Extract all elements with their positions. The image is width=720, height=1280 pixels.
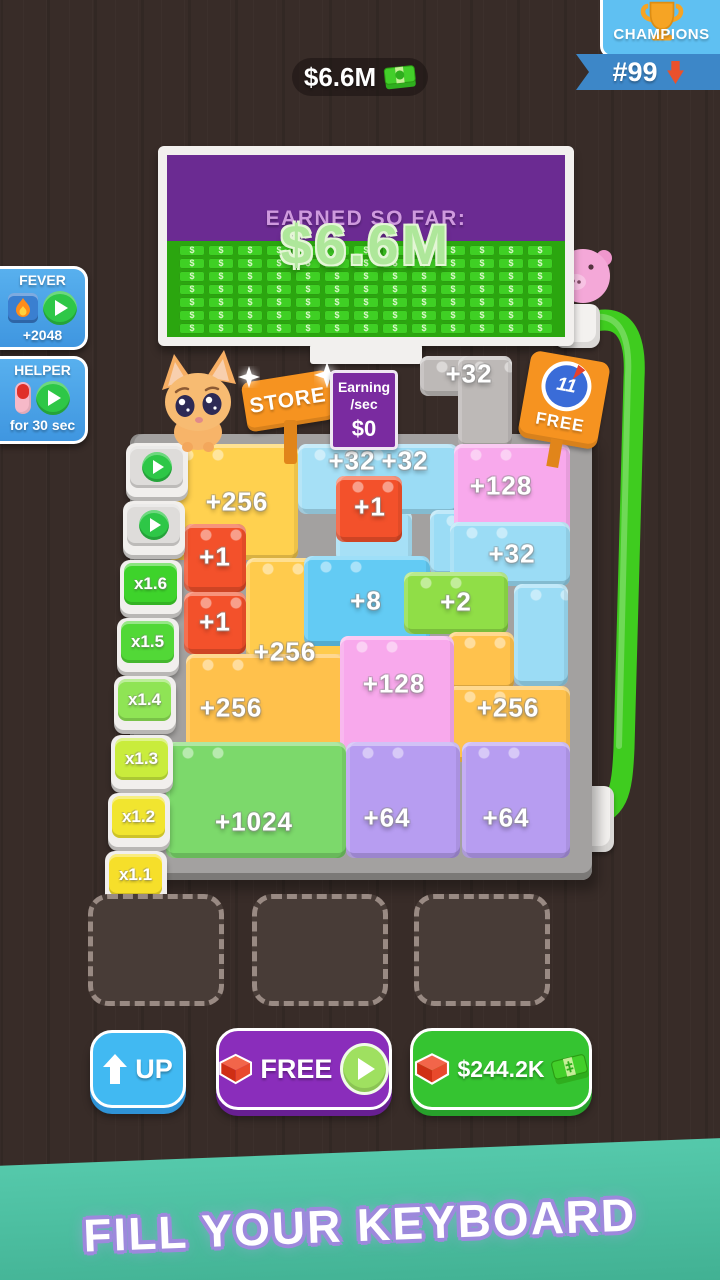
empty-slot[interactable] — [414, 894, 550, 1006]
free-button-label: FREE — [260, 1054, 332, 1085]
dollar-bill-icon: $ — [295, 284, 321, 295]
dollar-bill-icon: $ — [527, 323, 553, 334]
helper-duration: for 30 sec — [10, 417, 75, 433]
flame-icon — [14, 298, 32, 318]
dollar-bill-icon: $ — [266, 284, 292, 295]
dollar-bill-icon: $ — [266, 323, 292, 334]
helper-title: HELPER — [14, 362, 71, 378]
billboard-stand — [310, 344, 422, 364]
dollar-bill-icon: $ — [527, 297, 553, 308]
play-icon — [139, 510, 169, 540]
dollar-bill-icon: $ — [411, 310, 437, 321]
dollar-bill-icon: $ — [382, 284, 408, 295]
dollar-bill-icon: $ — [324, 310, 350, 321]
up-button-label: UP — [135, 1054, 173, 1085]
board-piece[interactable] — [184, 524, 246, 592]
helper-play-button[interactable] — [36, 381, 70, 415]
store-sign-label: STORE — [248, 383, 328, 419]
cash-icon — [383, 62, 418, 91]
dollar-bill-icon: $ — [382, 297, 408, 308]
board-piece[interactable] — [448, 632, 514, 690]
up-button[interactable]: UP — [90, 1030, 186, 1108]
key-multiplier-x1.2[interactable]: x1.2 — [108, 793, 170, 847]
key-multiplier-x1.6[interactable]: x1.6 — [120, 560, 182, 614]
dollar-bill-icon: $ — [295, 310, 321, 321]
board-piece[interactable] — [404, 572, 508, 634]
free-spawn-button[interactable]: FREE — [216, 1028, 392, 1110]
earning-label-1: Earning — [338, 379, 390, 396]
champions-card: CHAMPIONS — [600, 0, 720, 58]
rank-down-arrow-icon — [667, 61, 684, 84]
buy-brick-button[interactable]: $244.2K — [410, 1028, 592, 1110]
dollar-bill-icon: $ — [353, 310, 379, 321]
dollar-bill-icon: $ — [266, 297, 292, 308]
fever-reward: +2048 — [23, 327, 62, 343]
dollar-bill-icon: $ — [208, 323, 234, 334]
dollar-bill-icon: $ — [469, 323, 495, 334]
dollar-bill-icon: $ — [527, 284, 553, 295]
dollar-bill-icon: $ — [237, 297, 263, 308]
dollar-bill-icon: $ — [237, 310, 263, 321]
finger-icon — [15, 382, 31, 414]
earning-value: $0 — [352, 416, 376, 442]
dollar-bill-icon: $ — [295, 297, 321, 308]
dollar-bill-icon: $ — [382, 323, 408, 334]
fever-brick-icon — [8, 293, 38, 323]
red-brick-icon — [219, 1053, 252, 1085]
champions-rank: #99 — [612, 57, 657, 88]
dollar-bill-icon: $ — [324, 297, 350, 308]
dollar-bill-icon: $ — [469, 297, 495, 308]
dollar-bill-icon: $ — [208, 297, 234, 308]
dollar-bill-icon: $ — [411, 323, 437, 334]
fever-card[interactable]: FEVER +2048 — [0, 266, 88, 350]
red-brick-icon — [414, 1053, 450, 1085]
helper-card[interactable]: HELPER for 30 sec — [0, 356, 88, 444]
buy-button-label: $244.2K — [458, 1056, 545, 1083]
dollar-bill-icon: $ — [440, 297, 466, 308]
dollar-bill-icon: $ — [498, 323, 524, 334]
dollar-bill-icon: $ — [411, 284, 437, 295]
dollar-bill-icon: $ — [208, 310, 234, 321]
dollar-bill-icon: $ — [498, 310, 524, 321]
play-icon — [142, 452, 172, 482]
key-play-button[interactable] — [123, 501, 185, 555]
key-multiplier-x1.5[interactable]: x1.5 — [117, 618, 179, 672]
key-multiplier-x1.3[interactable]: x1.3 — [111, 735, 173, 789]
dollar-bill-icon: $ — [382, 310, 408, 321]
billboard-amount: $6.6M — [158, 212, 574, 277]
dollar-bill-icon: $ — [498, 297, 524, 308]
champions-title: CHAMPIONS — [603, 26, 720, 43]
dollar-bill-icon: $ — [295, 323, 321, 334]
board-piece[interactable] — [166, 742, 346, 858]
earning-label-2: /sec — [350, 396, 377, 413]
dollar-bill-icon: $ — [179, 284, 205, 295]
dollar-bill-icon: $ — [179, 323, 205, 334]
timer-icon: 11 — [537, 357, 595, 415]
dollar-bill-icon: $ — [527, 310, 553, 321]
dollar-bill-icon: $ — [208, 284, 234, 295]
free-play-icon — [340, 1043, 389, 1095]
dollar-bill-icon: $ — [469, 284, 495, 295]
cash-icon — [549, 1050, 591, 1088]
key-multiplier-x1.4[interactable]: x1.4 — [114, 676, 176, 730]
dollar-bill-icon: $ — [440, 323, 466, 334]
dollar-bill-icon: $ — [498, 284, 524, 295]
free-sign-label: FREE — [534, 409, 586, 437]
dollar-bill-icon: $ — [237, 284, 263, 295]
dollar-bill-icon: $ — [353, 284, 379, 295]
dollar-bill-icon: $ — [324, 284, 350, 295]
dollar-bill-icon: $ — [440, 310, 466, 321]
board-piece[interactable] — [336, 476, 402, 542]
dollar-bill-icon: $ — [469, 310, 495, 321]
free-gift-sign[interactable]: 11 FREE — [517, 350, 611, 451]
board-piece[interactable] — [462, 742, 570, 858]
earning-sign: Earning /sec $0 — [330, 370, 398, 450]
dollar-bill-icon: $ — [266, 310, 292, 321]
dollar-bill-icon: $ — [179, 297, 205, 308]
board-piece[interactable] — [458, 356, 512, 448]
sparkle-icon — [238, 366, 260, 388]
cat-character — [146, 350, 250, 452]
empty-slot[interactable] — [88, 894, 224, 1006]
champions-ribbon: #99 — [576, 54, 720, 90]
fever-play-button[interactable] — [43, 291, 77, 325]
balance-pill: $6.6M — [292, 58, 428, 96]
dollar-bill-icon: $ — [237, 323, 263, 334]
board-piece[interactable] — [184, 592, 246, 654]
dollar-bill-icon: $ — [179, 310, 205, 321]
dollar-bill-icon: $ — [353, 323, 379, 334]
empty-slot[interactable] — [252, 894, 388, 1006]
store-sign-post — [284, 420, 297, 464]
up-arrow-icon — [103, 1054, 127, 1084]
dollar-bill-icon: $ — [411, 297, 437, 308]
dollar-bill-icon: $ — [440, 284, 466, 295]
dollar-bill-icon: $ — [324, 323, 350, 334]
fever-title: FEVER — [19, 272, 66, 288]
champions-widget[interactable]: CHAMPIONS #99 — [598, 0, 720, 100]
balance-amount: $6.6M — [304, 62, 376, 93]
dollar-bill-icon: $ — [353, 297, 379, 308]
board-piece[interactable] — [346, 742, 460, 858]
board-piece[interactable] — [514, 584, 568, 686]
